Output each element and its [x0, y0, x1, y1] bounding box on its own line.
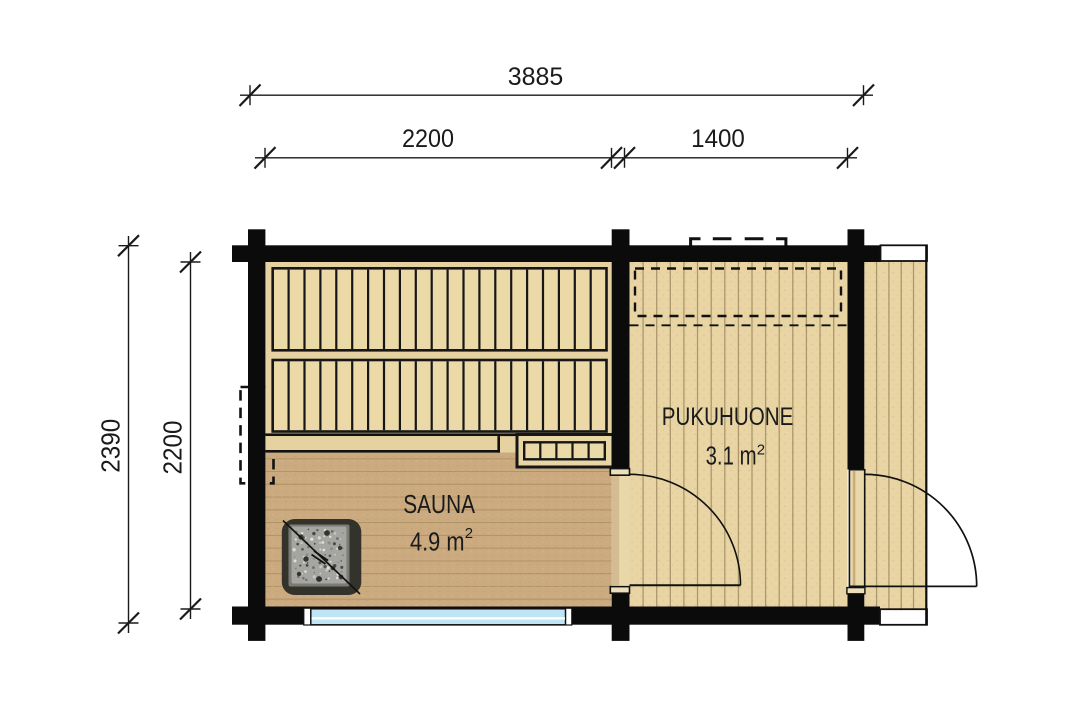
svg-text:2200: 2200	[402, 125, 454, 153]
svg-text:3885: 3885	[508, 63, 564, 91]
svg-text:3.1 m: 3.1 m	[706, 442, 757, 470]
svg-text:2390: 2390	[96, 419, 126, 473]
svg-text:2200: 2200	[158, 421, 188, 475]
svg-text:2: 2	[465, 525, 473, 542]
svg-text:4.9 m: 4.9 m	[410, 529, 465, 557]
svg-text:1400: 1400	[691, 125, 745, 153]
svg-text:SAUNA: SAUNA	[403, 491, 475, 519]
svg-text:PUKUHUONE: PUKUHUONE	[662, 403, 794, 431]
svg-text:2: 2	[757, 442, 765, 459]
